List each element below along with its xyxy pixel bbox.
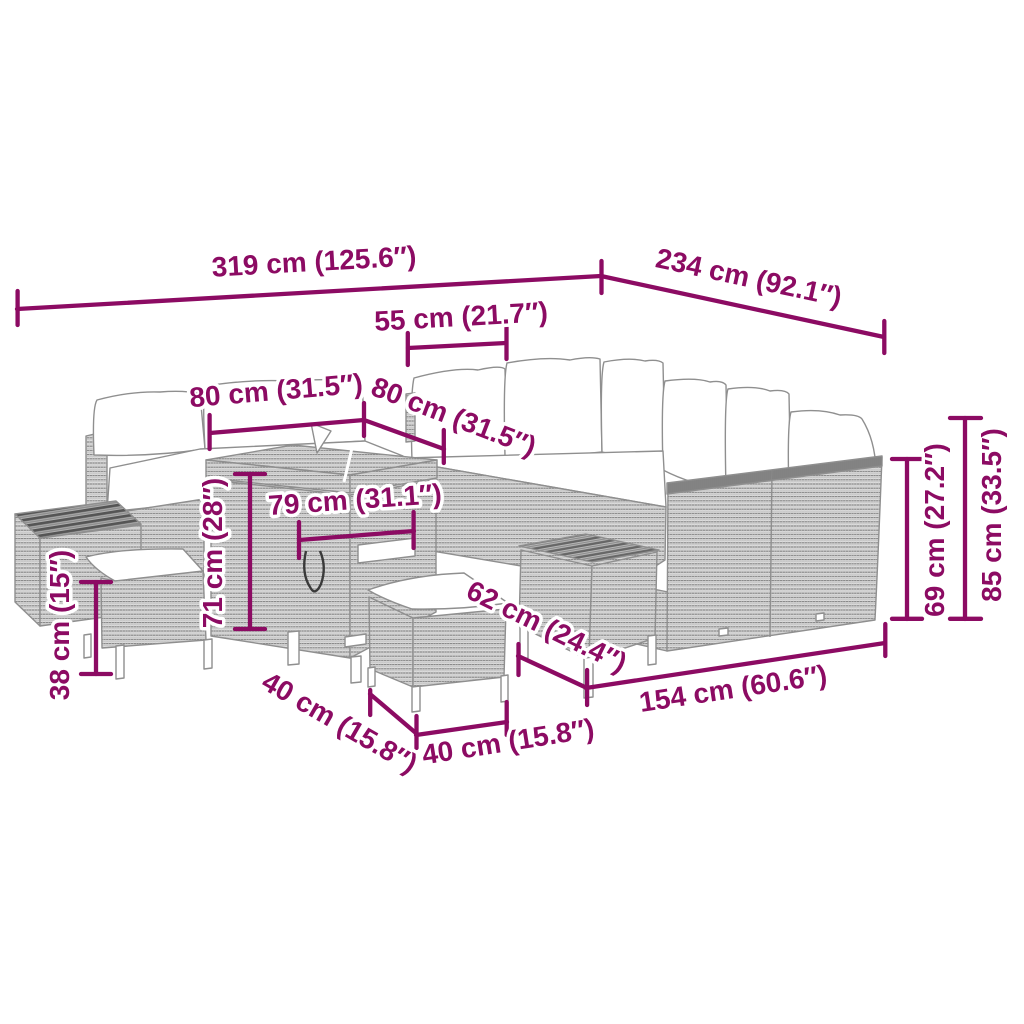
svg-text:85 cm (33.5″): 85 cm (33.5″)	[976, 428, 1007, 602]
svg-text:69 cm (27.2″): 69 cm (27.2″)	[919, 443, 950, 617]
svg-text:38 cm (15″): 38 cm (15″)	[44, 550, 75, 700]
svg-text:71 cm (28″): 71 cm (28″)	[197, 478, 228, 628]
